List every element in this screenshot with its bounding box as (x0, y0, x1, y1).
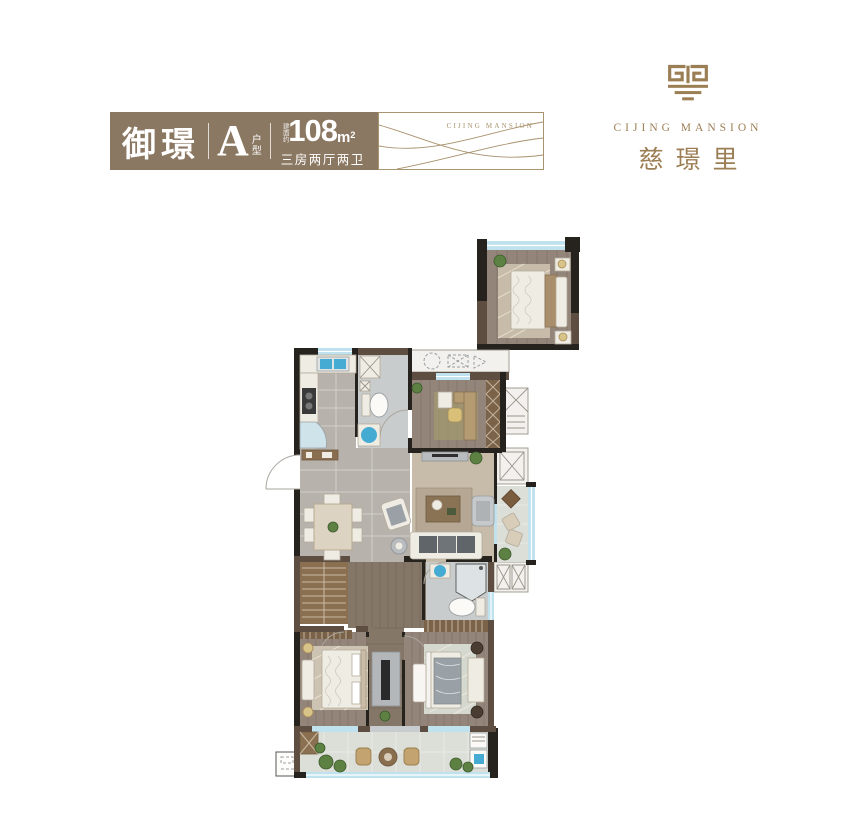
wicker-chair (404, 748, 419, 765)
plant-icon (328, 522, 338, 532)
hallway-floor (348, 562, 426, 628)
desk (464, 392, 476, 440)
ac-platform-right-mid (494, 562, 528, 592)
side-closet-outside (504, 388, 528, 434)
plant-icon (463, 762, 473, 772)
toilet (449, 598, 475, 616)
plant-icon (315, 743, 325, 753)
stool (471, 706, 483, 718)
sink-basin (320, 359, 332, 369)
plant-icon (319, 755, 333, 769)
headboard (426, 652, 431, 708)
floor-plan (0, 0, 845, 818)
sink-basin (334, 359, 346, 369)
pillow (352, 682, 360, 704)
bed (511, 271, 567, 329)
detached-bedroom (477, 237, 580, 350)
sofa (410, 532, 482, 559)
chaise (413, 664, 426, 702)
plant-icon (470, 452, 482, 464)
lamp (303, 707, 313, 717)
toilet-tank (476, 598, 485, 616)
bench (302, 660, 314, 700)
pillow (352, 654, 360, 676)
wicker-chair (356, 748, 371, 765)
toilet (370, 393, 388, 417)
plant-icon (334, 760, 346, 772)
stove (302, 388, 316, 414)
plant-icon (499, 548, 511, 560)
plant-icon (450, 758, 462, 770)
cabinet (470, 733, 487, 748)
ac-platform-right-top (496, 448, 528, 484)
desk-chair (448, 408, 462, 422)
dresser (468, 658, 484, 702)
lamp (303, 643, 313, 653)
entry-door (266, 455, 300, 489)
tv (432, 454, 458, 457)
roof-platform (410, 350, 509, 372)
washbasin (434, 565, 446, 577)
plant-icon (494, 255, 506, 267)
headboard (361, 650, 366, 708)
stool (471, 642, 483, 654)
plant-icon (380, 711, 390, 721)
toilet-tank (362, 394, 370, 416)
washbasin (361, 427, 377, 443)
plant-icon (412, 383, 422, 393)
armchair-right (472, 496, 494, 526)
